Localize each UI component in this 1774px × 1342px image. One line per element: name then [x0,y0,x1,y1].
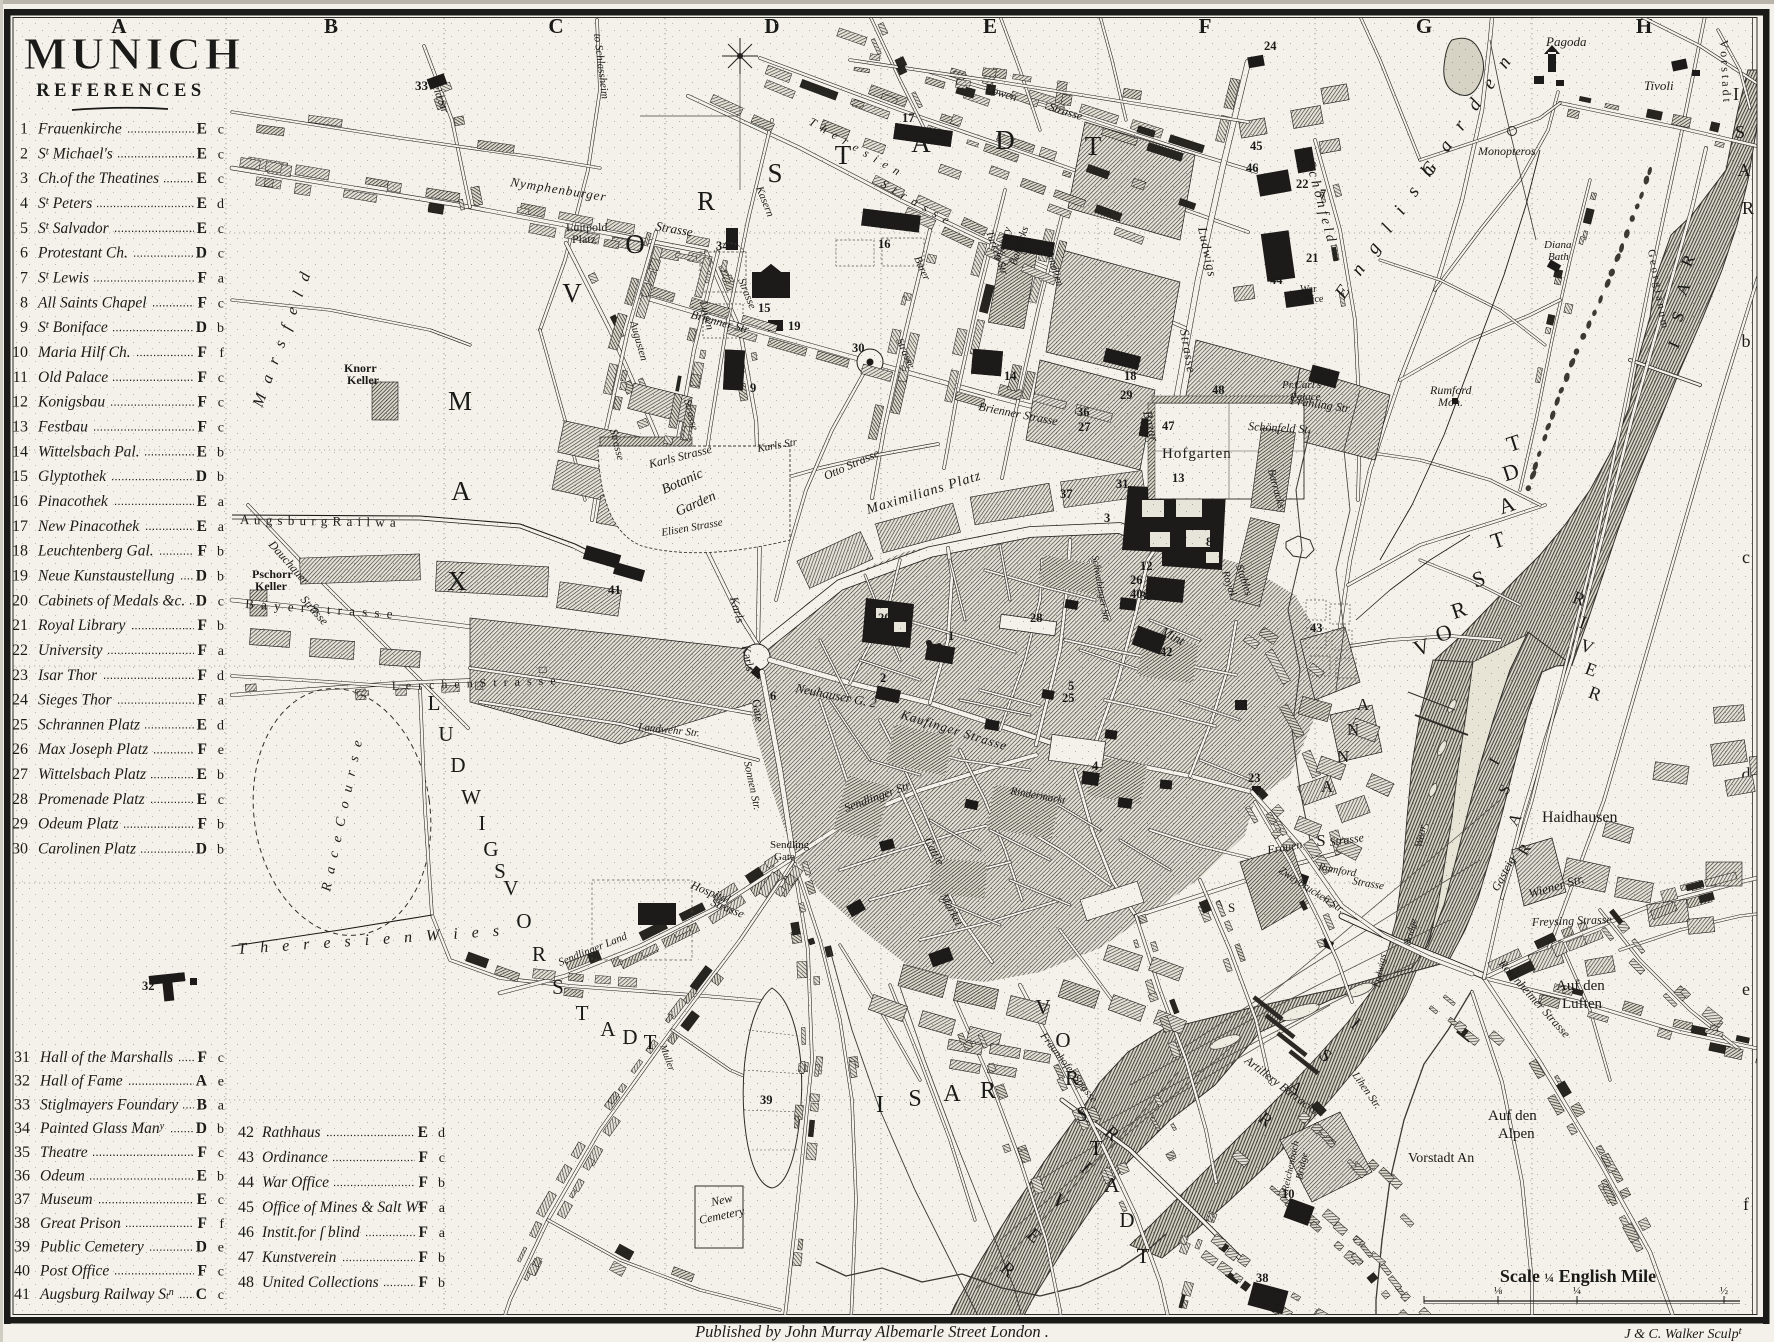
svg-text:38: 38 [14,1215,30,1232]
svg-text:E: E [197,170,207,187]
svg-text:24: 24 [12,692,28,709]
svg-text:b: b [438,1176,445,1191]
svg-text:War Office: War Office [262,1174,329,1191]
svg-text:Maria Hilf Ch.: Maria Hilf Ch. [37,344,131,361]
svg-text:Neue Kunstaustellung: Neue Kunstaustellung [37,567,175,584]
svg-text:F: F [419,1199,428,1216]
svg-text:a: a [218,694,225,709]
svg-text:2: 2 [20,145,28,162]
svg-text:15: 15 [12,468,28,485]
svg-text:F: F [198,1215,207,1232]
svg-text:Max Joseph Platz: Max Joseph Platz [37,741,148,758]
svg-text:E: E [197,443,207,460]
svg-text:a: a [218,1098,225,1113]
svg-text:E: E [418,1124,428,1141]
svg-text:F: F [419,1224,428,1241]
svg-text:13: 13 [12,419,28,436]
svg-text:a: a [218,495,225,510]
svg-text:Instit.for ſ blind: Instit.for ſ blind [261,1224,360,1241]
svg-text:St Lewis: St Lewis [38,270,89,287]
svg-text:b: b [438,1276,445,1291]
svg-text:Festbau: Festbau [37,419,88,436]
svg-text:F: F [198,394,207,411]
svg-text:c: c [218,123,224,138]
svg-text:c: c [439,1151,445,1166]
svg-text:40: 40 [14,1262,30,1279]
svg-text:MUNICH: MUNICH [24,28,245,79]
svg-text:F: F [198,667,207,684]
svg-text:9: 9 [20,319,28,336]
svg-text:F: F [198,344,207,361]
svg-text:e: e [218,1241,224,1256]
svg-text:St Michael's: St Michael's [38,145,113,162]
svg-text:F: F [198,369,207,386]
svg-text:36: 36 [14,1168,30,1185]
svg-text:f: f [219,1217,224,1232]
svg-text:b: b [217,818,224,833]
svg-text:D: D [196,1120,207,1137]
svg-text:Published by John Murray Albem: Published by John Murray Albemarle Stree… [694,1322,1049,1341]
svg-text:b: b [438,1251,445,1266]
svg-text:F: F [198,270,207,287]
svg-text:F: F [198,816,207,833]
svg-text:4: 4 [20,195,28,212]
svg-text:Cabinets of Medals &c.: Cabinets of Medals &c. [38,592,185,609]
svg-text:c: c [218,594,224,609]
svg-text:18: 18 [12,543,28,560]
svg-text:Rathhaus: Rathhaus [261,1124,321,1141]
svg-text:a: a [218,272,225,287]
svg-text:New Pinacothek: New Pinacothek [37,518,140,535]
svg-text:c: c [218,1146,224,1161]
svg-text:Frauenkirche: Frauenkirche [37,121,122,138]
svg-text:F: F [198,1144,207,1161]
svg-text:Schrannen Platz: Schrannen Platz [38,716,140,733]
svg-text:A: A [196,1073,208,1090]
svg-text:33: 33 [14,1096,30,1113]
svg-text:E: E [197,1191,207,1208]
svg-text:c: c [218,147,224,162]
svg-text:10: 10 [12,344,28,361]
svg-text:United Collections: United Collections [262,1274,379,1291]
svg-text:b: b [217,445,224,460]
svg-text:Wittelsbach Platz: Wittelsbach Platz [38,766,146,783]
svg-text:E: E [197,121,207,138]
svg-text:Augsburg Railway Stn: Augsburg Railway Stn [39,1286,174,1303]
svg-text:22: 22 [12,642,28,659]
svg-text:REFERENCES: REFERENCES [36,81,205,101]
svg-text:Hall of Fame: Hall of Fame [39,1073,123,1090]
svg-text:32: 32 [14,1073,30,1090]
svg-text:28: 28 [12,791,28,808]
svg-text:Isar Thor: Isar Thor [37,667,98,684]
svg-text:Konigsbau: Konigsbau [37,394,105,411]
svg-text:45: 45 [238,1199,254,1216]
svg-text:7: 7 [20,270,28,287]
svg-text:29: 29 [12,816,28,833]
svg-text:F: F [198,1262,207,1279]
svg-text:F: F [419,1274,428,1291]
svg-text:E: E [197,791,207,808]
svg-text:a: a [439,1226,446,1241]
svg-text:42: 42 [238,1124,254,1141]
svg-text:46: 46 [238,1224,254,1241]
svg-text:e: e [218,1075,224,1090]
svg-text:Stiglmayers Foundary: Stiglmayers Foundary [40,1096,178,1113]
svg-text:25: 25 [12,716,28,733]
svg-text:St Salvador: St Salvador [38,220,110,237]
svg-text:34: 34 [14,1120,30,1137]
svg-text:E: E [197,145,207,162]
svg-text:39: 39 [14,1239,30,1256]
svg-text:F: F [419,1174,428,1191]
svg-text:E: E [197,493,207,510]
svg-text:19: 19 [12,567,28,584]
svg-text:c: c [218,396,224,411]
svg-text:5: 5 [20,220,28,237]
svg-text:b: b [217,843,224,858]
svg-text:Scale ¼ English Mile: Scale ¼ English Mile [1500,1266,1656,1286]
svg-text:E: E [197,766,207,783]
svg-text:Promenade Platz: Promenade Platz [37,791,145,808]
svg-text:27: 27 [12,766,28,783]
svg-text:47: 47 [238,1249,254,1266]
svg-text:E: E [197,1168,207,1185]
svg-text:48: 48 [238,1274,254,1291]
svg-text:E: E [197,195,207,212]
svg-text:½: ½ [1720,1285,1728,1297]
svg-text:c: c [218,371,224,386]
svg-text:31: 31 [14,1049,30,1066]
svg-text:f: f [219,346,224,361]
svg-text:c: c [218,1264,224,1279]
svg-text:Public Cemetery: Public Cemetery [39,1239,144,1256]
svg-text:23: 23 [12,667,28,684]
svg-text:F: F [198,741,207,758]
svg-text:c: c [218,222,224,237]
svg-text:Office of Mines & Salt Ws: Office of Mines & Salt Ws [262,1199,422,1216]
svg-text:⅛: ⅛ [1494,1285,1503,1297]
svg-text:E: E [197,220,207,237]
svg-text:D: D [196,592,207,609]
svg-text:Ch.of the Theatines: Ch.of the Theatines [38,170,159,187]
svg-text:20: 20 [12,592,28,609]
svg-text:1: 1 [20,121,28,138]
svg-text:b: b [217,1122,224,1137]
svg-text:c: c [218,247,224,262]
svg-text:Hall of the Marshalls: Hall of the Marshalls [39,1049,173,1066]
svg-text:Ordinance: Ordinance [262,1149,328,1166]
svg-text:c: c [218,1288,224,1303]
svg-text:e: e [218,743,224,758]
svg-text:F: F [198,642,207,659]
svg-text:30: 30 [12,841,28,858]
svg-text:F: F [419,1249,428,1266]
svg-text:c: c [218,172,224,187]
svg-text:D: D [196,319,207,336]
svg-text:Old Palace: Old Palace [38,369,108,386]
svg-text:a: a [439,1201,446,1216]
svg-text:F: F [198,1049,207,1066]
svg-text:c: c [218,1193,224,1208]
svg-text:a: a [218,520,225,535]
svg-text:C: C [196,1286,207,1303]
svg-text:St Boniface: St Boniface [38,319,108,336]
svg-text:Glyptothek: Glyptothek [38,468,107,485]
svg-text:Royal Library: Royal Library [37,617,126,634]
svg-text:d: d [217,669,224,684]
svg-text:26: 26 [12,741,28,758]
svg-text:F: F [198,543,207,560]
svg-text:16: 16 [12,493,28,510]
svg-text:Pinacothek: Pinacothek [37,493,109,510]
svg-text:b: b [217,619,224,634]
svg-text:b: b [217,768,224,783]
svg-text:J & C. Walker Sculpt: J & C. Walker Sculpt [1624,1325,1742,1342]
svg-text:D: D [196,841,207,858]
svg-text:Leuchtenberg Gal.: Leuchtenberg Gal. [37,543,154,560]
svg-text:E: E [197,518,207,535]
svg-text:Kunstverein: Kunstverein [261,1249,337,1266]
svg-text:b: b [217,1170,224,1185]
svg-text:12: 12 [12,394,28,411]
svg-text:D: D [196,468,207,485]
svg-text:Wittelsbach Pal.: Wittelsbach Pal. [38,443,140,460]
svg-text:F: F [198,692,207,709]
svg-text:11: 11 [13,369,28,386]
svg-text:43: 43 [238,1149,254,1166]
svg-text:44: 44 [238,1174,254,1191]
svg-text:c: c [218,793,224,808]
svg-text:Museum: Museum [39,1191,93,1208]
svg-text:21: 21 [12,617,28,634]
svg-text:Protestant Ch.: Protestant Ch. [37,245,128,262]
svg-text:6: 6 [20,245,28,262]
svg-text:Odeum: Odeum [40,1168,85,1185]
svg-text:14: 14 [12,443,28,460]
svg-text:F: F [198,419,207,436]
svg-text:F: F [198,617,207,634]
svg-text:¼: ¼ [1573,1285,1581,1297]
svg-text:c: c [218,1051,224,1066]
svg-text:b: b [217,321,224,336]
svg-text:D: D [196,245,207,262]
svg-text:D: D [196,1239,207,1256]
svg-text:Great Prison: Great Prison [40,1215,121,1232]
svg-text:E: E [197,716,207,733]
svg-text:B: B [197,1096,207,1113]
svg-text:F: F [419,1149,428,1166]
svg-text:Painted Glass Many: Painted Glass Many [39,1120,165,1137]
svg-text:a: a [218,644,225,659]
svg-text:17: 17 [12,518,28,535]
svg-text:41: 41 [14,1286,30,1303]
svg-text:b: b [217,569,224,584]
svg-text:d: d [217,197,224,212]
svg-text:F: F [198,294,207,311]
svg-text:d: d [217,718,224,733]
svg-text:Sieges Thor: Sieges Thor [38,692,113,709]
svg-text:Post Office: Post Office [39,1262,109,1279]
svg-text:37: 37 [14,1191,30,1208]
svg-text:Odeum Platz: Odeum Platz [38,816,119,833]
svg-text:b: b [217,545,224,560]
svg-text:Theatre: Theatre [40,1144,88,1161]
svg-text:3: 3 [20,170,28,187]
svg-text:D: D [196,567,207,584]
svg-text:c: c [218,296,224,311]
svg-text:b: b [217,470,224,485]
svg-text:35: 35 [14,1144,30,1161]
svg-text:All Saints Chapel: All Saints Chapel [37,294,147,311]
svg-text:c: c [218,421,224,436]
svg-text:University: University [38,642,103,659]
svg-text:d: d [438,1126,445,1141]
svg-text:Carolinen Platz: Carolinen Platz [38,841,136,858]
svg-text:8: 8 [20,294,28,311]
